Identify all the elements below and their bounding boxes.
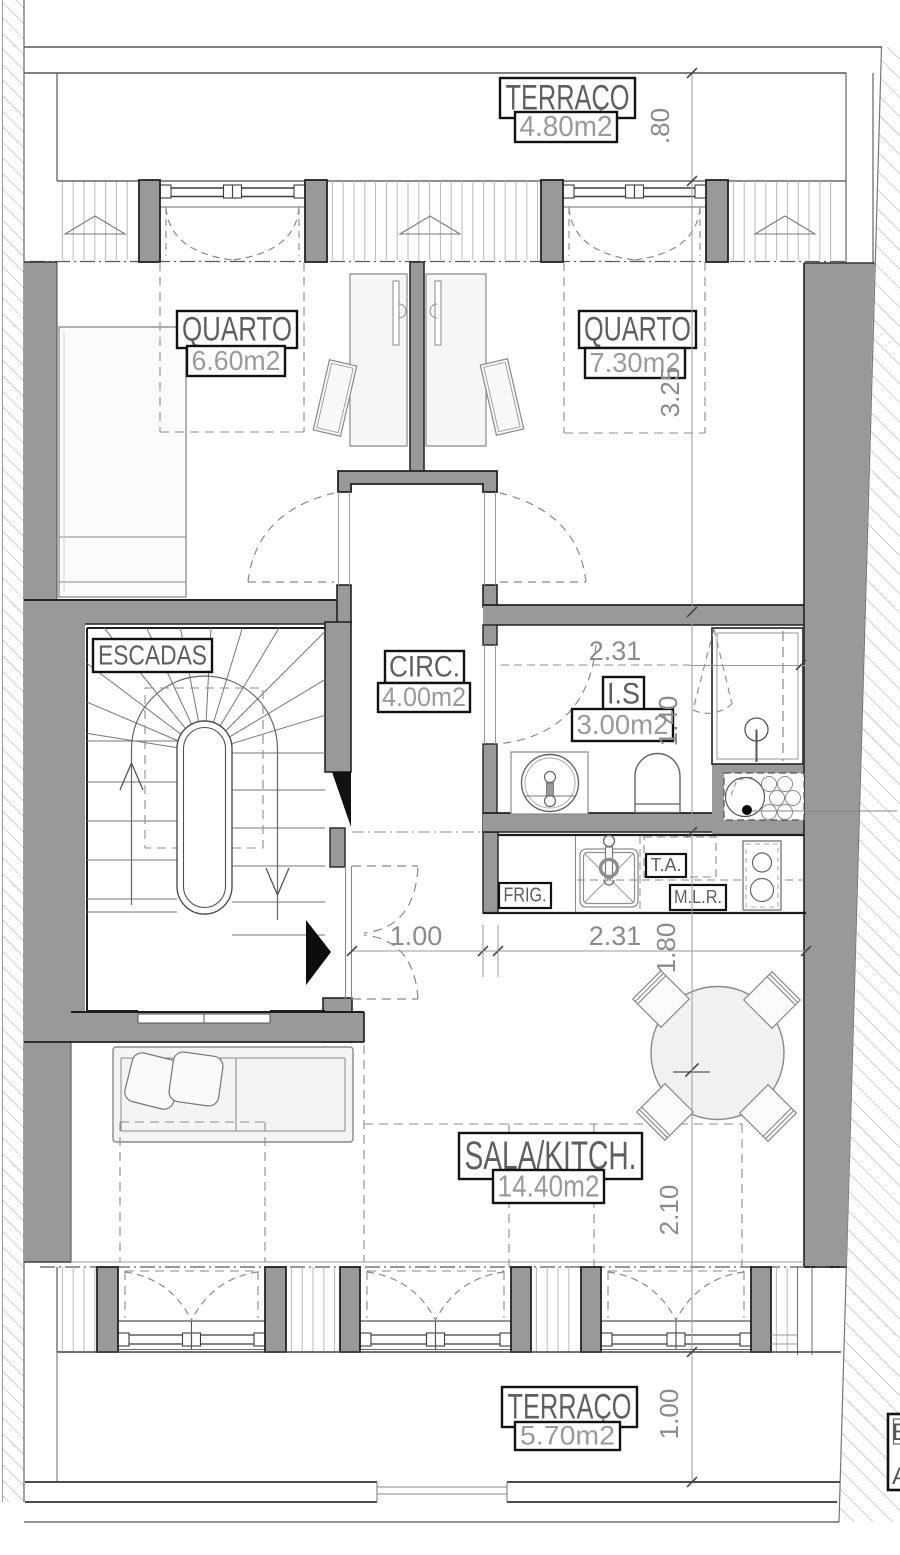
svg-text:QUARTO: QUARTO xyxy=(584,310,691,348)
svg-text:4.00m2: 4.00m2 xyxy=(382,682,466,712)
svg-text:2.10: 2.10 xyxy=(654,1185,684,1236)
svg-text:5.70m2: 5.70m2 xyxy=(520,1420,615,1450)
svg-text:FRIG.: FRIG. xyxy=(504,885,547,907)
svg-text:E: E xyxy=(892,1419,900,1446)
svg-text:2.31: 2.31 xyxy=(589,921,642,951)
svg-text:1.80: 1.80 xyxy=(651,923,681,974)
svg-text:T.A.: T.A. xyxy=(651,855,682,875)
svg-text:CIRC.: CIRC. xyxy=(389,651,460,684)
svg-text:1.00: 1.00 xyxy=(390,921,443,951)
svg-text:.80: .80 xyxy=(645,108,675,144)
svg-text:2.31: 2.31 xyxy=(589,636,642,666)
svg-text:ESCADAS: ESCADAS xyxy=(98,639,207,670)
svg-text:6.60m2: 6.60m2 xyxy=(192,345,281,376)
svg-text:4.80m2: 4.80m2 xyxy=(520,111,613,143)
svg-text:3.25: 3.25 xyxy=(655,367,685,418)
svg-text:A: A xyxy=(892,1463,900,1490)
svg-text:14.40m2: 14.40m2 xyxy=(498,1168,600,1203)
svg-text:QUARTO: QUARTO xyxy=(182,310,292,348)
svg-text:1.00: 1.00 xyxy=(654,1389,684,1440)
svg-text:M.L.R.: M.L.R. xyxy=(674,887,722,907)
svg-text:1.40: 1.40 xyxy=(653,696,683,747)
svg-text:I.S: I.S xyxy=(607,678,640,711)
